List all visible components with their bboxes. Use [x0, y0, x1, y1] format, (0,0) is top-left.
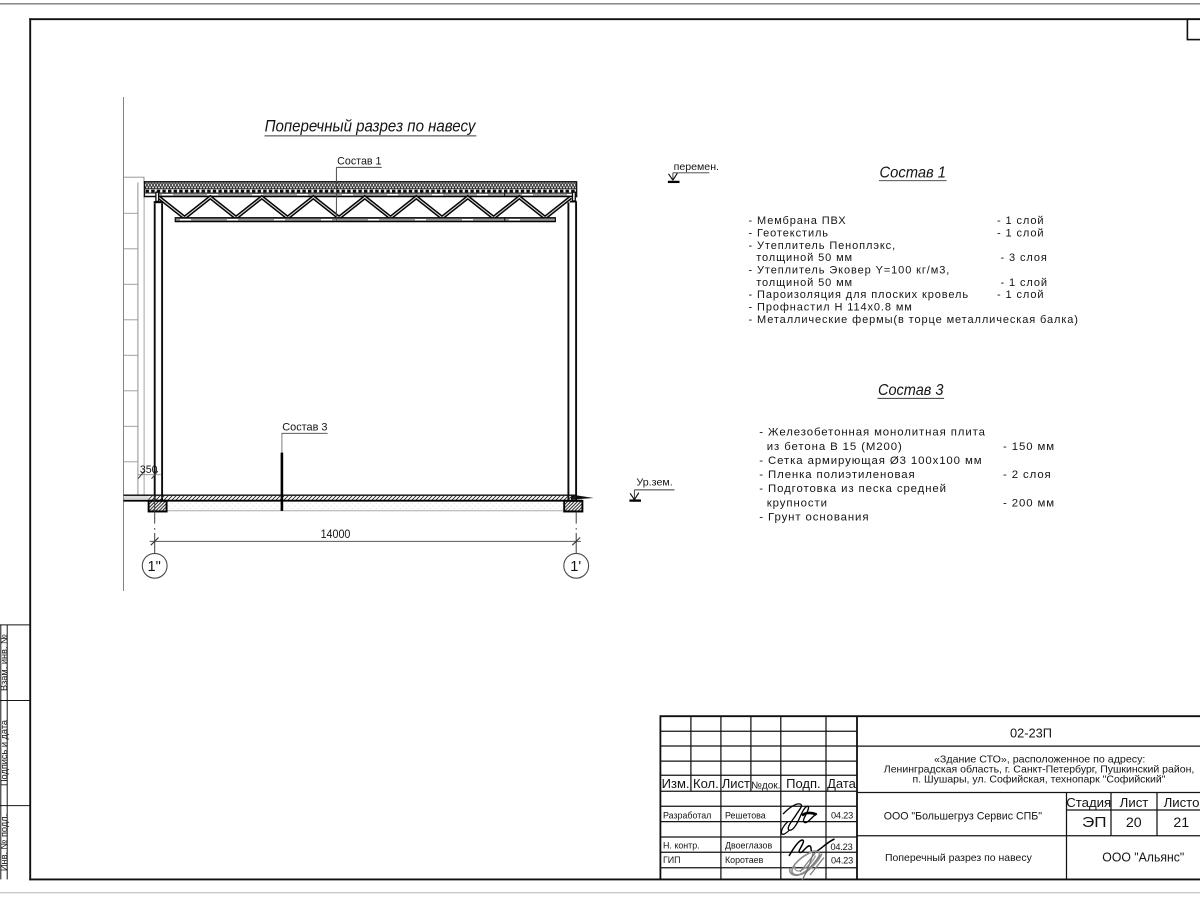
svg-text:- Утеплитель Пеноплэкс,: - Утеплитель Пеноплэкс, [749, 240, 897, 252]
svg-text:Стадия: Стадия [1066, 795, 1111, 810]
svg-text:Инв. № подл.: Инв. № подл. [0, 814, 9, 871]
svg-text:из бетона В 15 (М200): из бетона В 15 (М200) [767, 441, 903, 453]
svg-text:перемен.: перемен. [674, 161, 719, 173]
svg-text:04.23: 04.23 [831, 810, 853, 820]
svg-text:- Грунт основания: - Грунт основания [759, 512, 869, 524]
svg-text:Разработал: Разработал [663, 811, 711, 821]
svg-text:1': 1' [570, 559, 581, 575]
svg-text:- Геотекстиль: - Геотекстиль [749, 227, 829, 239]
svg-text:- 1 слой: - 1 слой [997, 227, 1044, 239]
svg-text:Взам. инв. №: Взам. инв. № [0, 634, 9, 691]
svg-text:толщиной 50 мм: толщиной 50 мм [756, 277, 853, 289]
svg-text:ЭП: ЭП [1082, 815, 1107, 831]
svg-text:Решетова: Решетова [725, 811, 766, 821]
svg-text:- Сетка армирующая Ø3 100х100: - Сетка армирующая Ø3 100х100 мм [759, 455, 982, 467]
svg-text:Поперечный разрез по навесу: Поперечный разрез по навесу [265, 117, 477, 135]
svg-text:- 200 мм: - 200 мм [1003, 497, 1055, 509]
svg-text:крупности: крупности [767, 497, 828, 509]
svg-text:Листов: Листов [1164, 795, 1200, 810]
svg-text:02-23П: 02-23П [1010, 726, 1052, 741]
svg-text:Состав 3: Состав 3 [282, 422, 327, 434]
svg-text:04.23: 04.23 [831, 855, 853, 865]
svg-text:Поперечный разрез по навесу: Поперечный разрез по навесу [885, 852, 1033, 864]
svg-text:ООО "Альянс": ООО "Альянс" [1102, 849, 1184, 864]
svg-text:Подп.: Подп. [786, 776, 821, 791]
svg-text:Н. контр.: Н. контр. [663, 840, 700, 850]
svg-text:20: 20 [1126, 815, 1142, 831]
svg-text:21: 21 [1173, 815, 1189, 831]
svg-text:- Пароизоляция для плоских кро: - Пароизоляция для плоских кровель [749, 289, 970, 301]
svg-text:Коротаев: Коротаев [725, 855, 764, 865]
svg-text:Ур.зем.: Ур.зем. [636, 477, 672, 489]
svg-text:Дата: Дата [827, 776, 857, 791]
svg-text:- 3 слоя: - 3 слоя [1001, 252, 1048, 264]
svg-text:04.23: 04.23 [831, 842, 853, 852]
svg-text:- 1 слой: - 1 слой [997, 289, 1044, 301]
svg-text:14000: 14000 [321, 527, 351, 541]
svg-text:- 1 слой: - 1 слой [1001, 277, 1048, 289]
svg-text:ГИП: ГИП [663, 855, 681, 865]
svg-text:Двоеглазов: Двоеглазов [725, 840, 772, 850]
svg-text:Лист: Лист [1120, 795, 1149, 810]
svg-text:- Пленка полиэтиленовая: - Пленка полиэтиленовая [759, 469, 915, 481]
svg-text:Состав 3: Состав 3 [878, 382, 944, 399]
svg-text:1": 1" [148, 559, 161, 575]
svg-text:- Металлические фермы(в торце: - Металлические фермы(в торце металличес… [749, 314, 1079, 326]
svg-text:- Мембрана ПВХ: - Мембрана ПВХ [749, 215, 847, 227]
svg-text:- Железобетонная монолитная п: - Железобетонная монолитная плита [759, 427, 986, 439]
svg-text:Лист: Лист [722, 776, 750, 791]
svg-text:- Подготовка из песка средней: - Подготовка из песка средней [759, 483, 947, 495]
svg-text:Кол.: Кол. [693, 776, 719, 791]
svg-text:350: 350 [140, 464, 158, 476]
svg-text:Изм.: Изм. [662, 776, 690, 791]
svg-text:Подпись и дата: Подпись и дата [0, 719, 9, 786]
svg-text:Состав 1: Состав 1 [337, 155, 381, 167]
svg-text:п. Шушары, ул. Софийская, техн: п. Шушары, ул. Софийская, технопарк "Соф… [913, 774, 1166, 786]
svg-text:- Утеплитель Эковер Y=100 кг/м: - Утеплитель Эковер Y=100 кг/м3, [749, 265, 951, 277]
svg-text:- Профнастил Н 114х0.8 мм: - Профнастил Н 114х0.8 мм [749, 302, 913, 314]
svg-text:Состав 1: Состав 1 [880, 164, 947, 181]
svg-text:- 150 мм: - 150 мм [1003, 441, 1055, 453]
svg-text:- 2 слоя: - 2 слоя [1003, 469, 1052, 481]
svg-text:толщиной 50 мм: толщиной 50 мм [756, 252, 853, 264]
svg-text:- 1 слой: - 1 слой [997, 215, 1044, 227]
svg-text:ООО "Большегруз Сервис СПБ": ООО "Большегруз Сервис СПБ" [884, 811, 1043, 823]
svg-text:№док.: №док. [751, 781, 780, 792]
